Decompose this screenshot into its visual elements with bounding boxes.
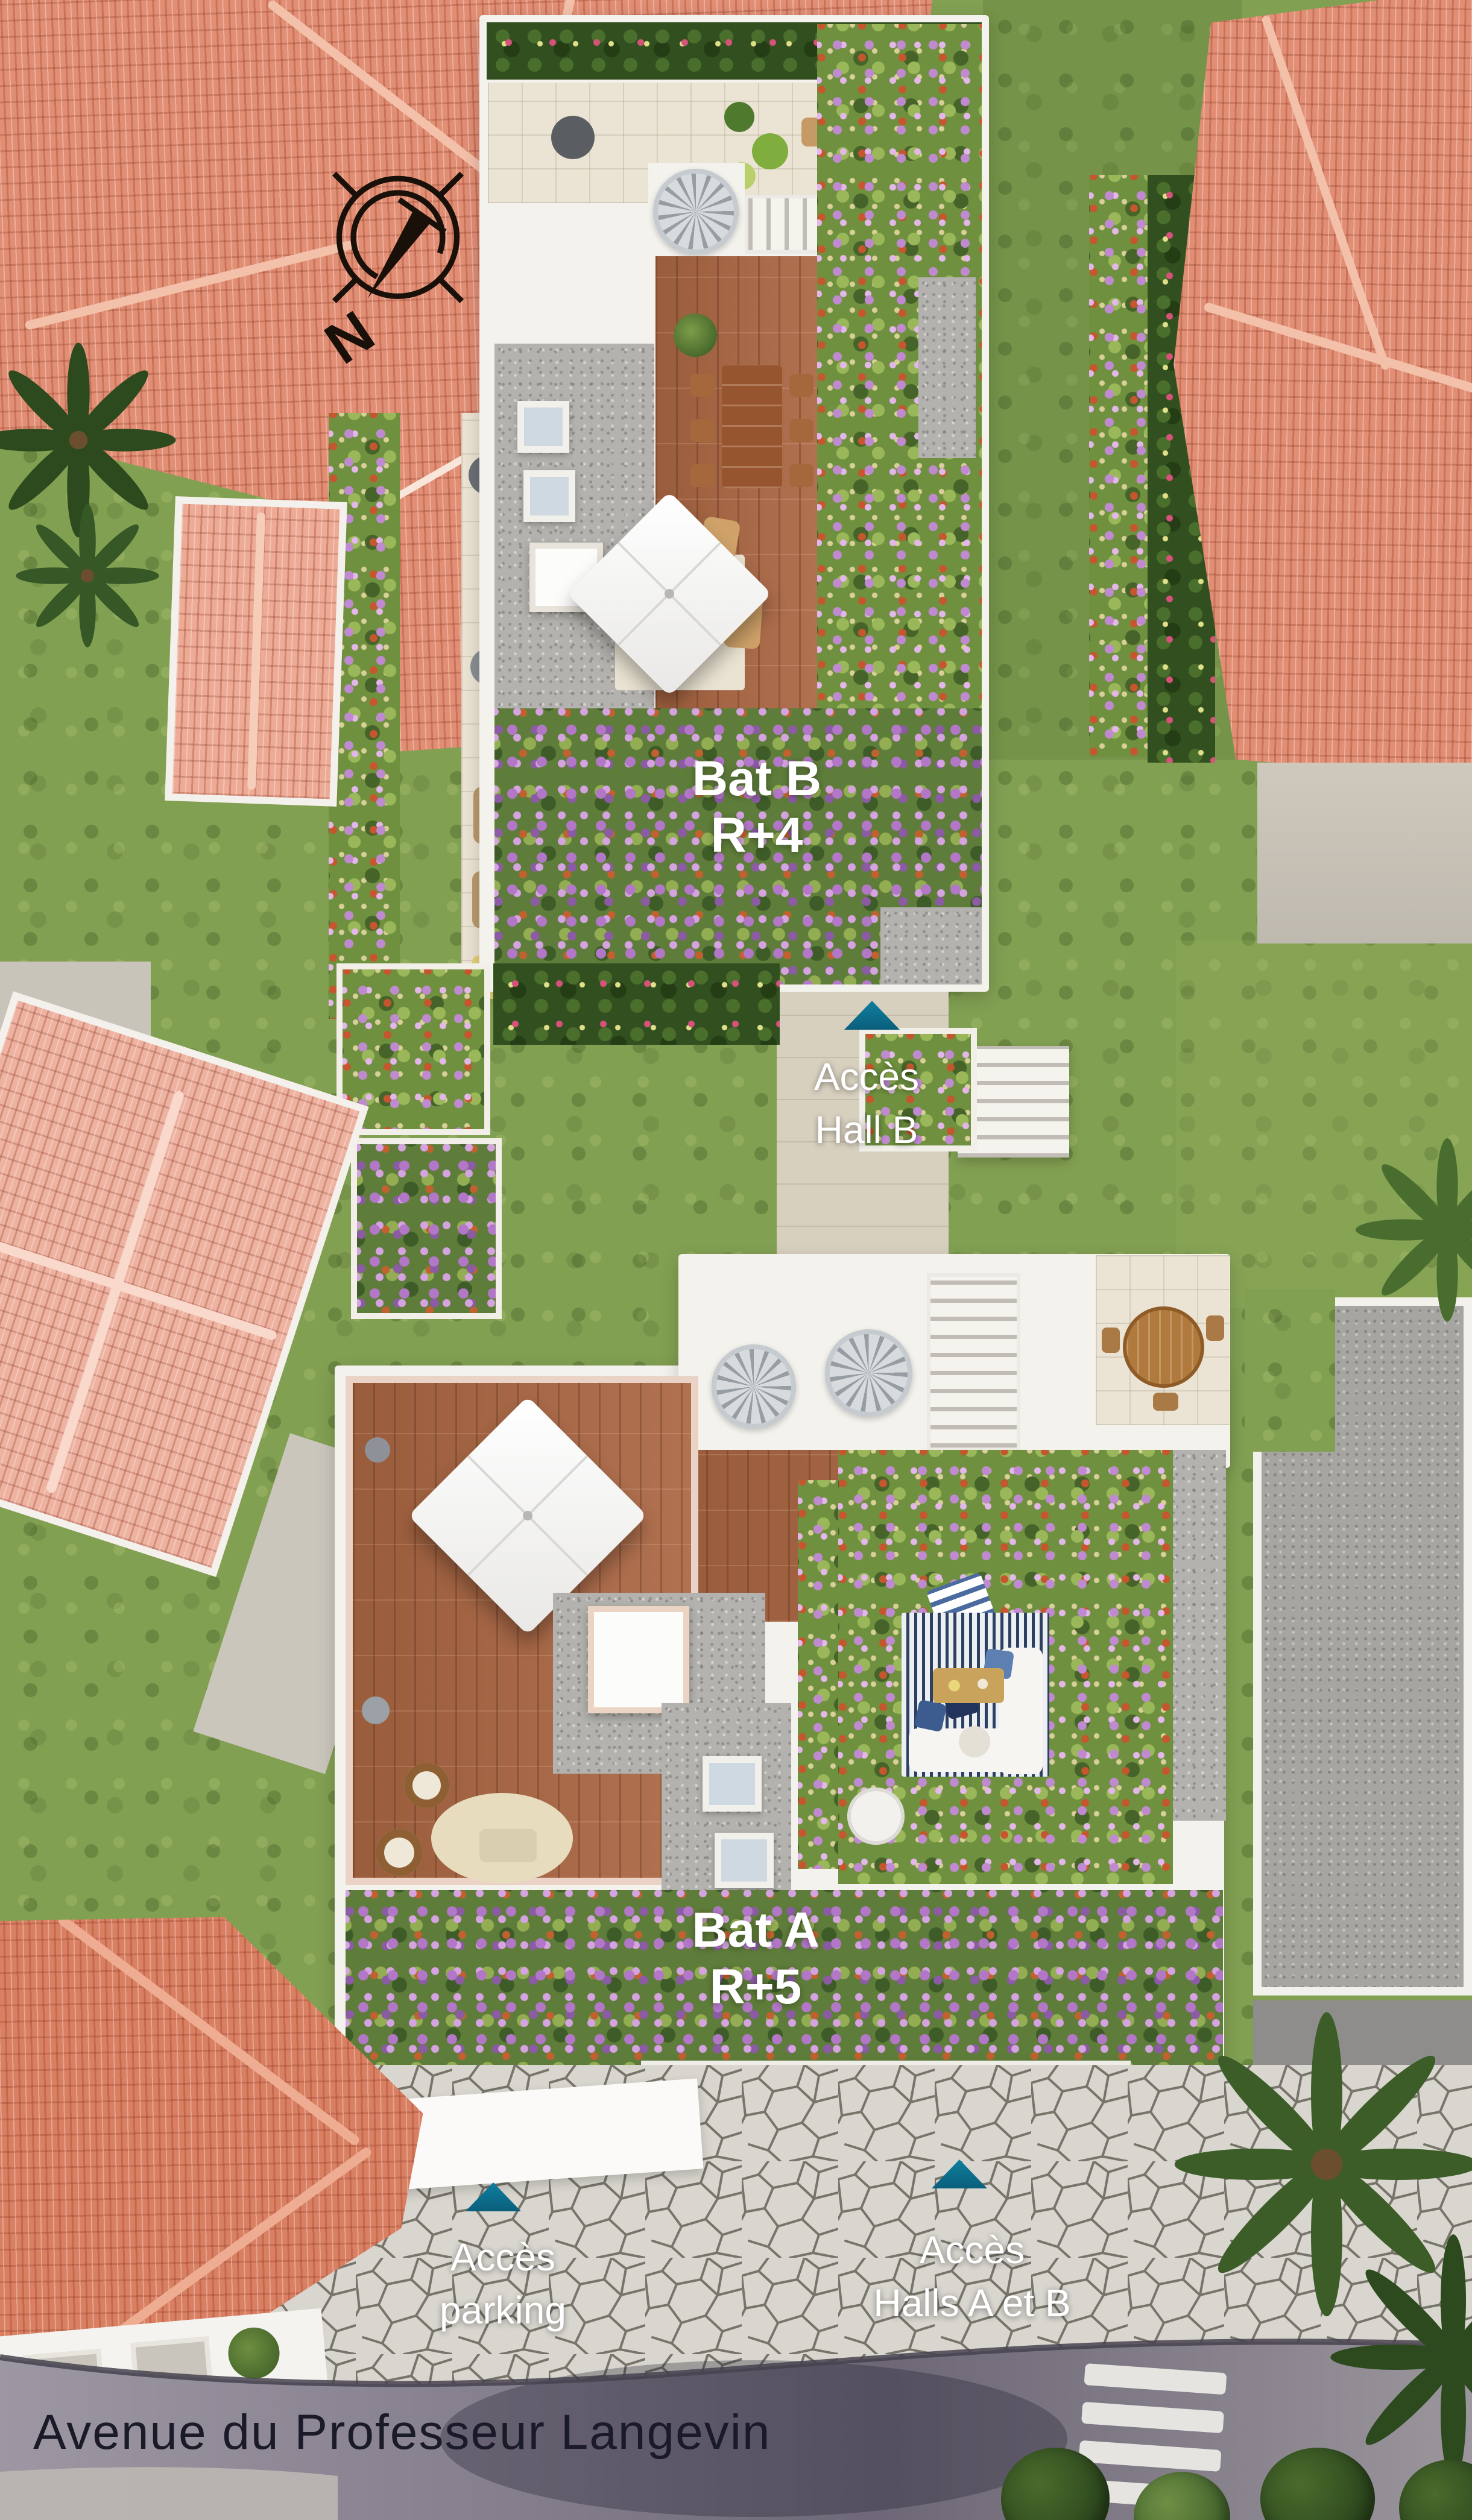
stool <box>1206 1315 1224 1341</box>
gravel-roof-area <box>662 1703 791 1902</box>
planter-pot <box>362 1696 390 1724</box>
gravel-strip <box>1168 1450 1226 1821</box>
striped-rug <box>902 1613 1049 1777</box>
compass-n-letter: N <box>314 298 385 377</box>
wood-round-table <box>1123 1306 1204 1388</box>
spiral-staircase <box>653 169 739 254</box>
rattan-chair <box>404 1763 449 1808</box>
stool <box>1153 1393 1178 1411</box>
green-roof-garden <box>838 1450 1173 1884</box>
pillow <box>914 1699 947 1733</box>
hedge-band <box>493 963 780 1045</box>
building-label-bat-b: Bat B R+4 <box>576 751 938 864</box>
skylight <box>715 1833 774 1888</box>
access-line: Hall B <box>746 1103 987 1156</box>
pergola <box>927 1273 1020 1451</box>
chair <box>690 464 715 487</box>
garden-path <box>918 277 976 458</box>
potted-plant <box>752 133 788 169</box>
building-floors: R+5 <box>557 1959 955 2015</box>
access-line: Accès <box>746 1050 987 1103</box>
palm-tree-icon <box>1327 2231 1472 2484</box>
skylight <box>517 401 569 453</box>
garden-path <box>880 907 982 984</box>
building-name: Bat A <box>557 1902 955 1959</box>
access-label-halls-a-b: Accès Halls A et B <box>803 2223 1141 2329</box>
flower-border-strip <box>1089 175 1149 757</box>
concrete-pad <box>1257 763 1472 943</box>
planter-pot <box>365 1437 390 1463</box>
building-floors: R+4 <box>576 807 938 864</box>
spiral-staircase <box>825 1329 912 1417</box>
closed-parasol <box>847 1788 905 1845</box>
chair <box>789 419 813 442</box>
roof-ridge <box>24 240 354 330</box>
neighbor-roof-west <box>165 496 347 807</box>
coffee-table <box>933 1668 1004 1703</box>
access-label-parking: Accès parking <box>382 2231 624 2337</box>
palm-tree-icon <box>1351 1133 1472 1326</box>
chair <box>789 374 813 397</box>
green-roof-garden <box>817 24 982 808</box>
rooftop-terrace <box>1096 1255 1230 1425</box>
bistro-table <box>551 116 595 159</box>
roof-ridge <box>1203 302 1472 395</box>
roof-ridge <box>1261 14 1391 371</box>
shrub <box>674 313 717 357</box>
site-plan-scene: Bat B R+4 Accès Hall B <box>0 0 1472 2520</box>
roof-hatch <box>588 1606 689 1713</box>
access-label-hall-b: Accès Hall B <box>746 1050 987 1156</box>
stair-landing <box>706 1317 802 1465</box>
roof-ridge <box>45 1090 185 1495</box>
stool <box>1102 1328 1120 1353</box>
pouf <box>959 1726 990 1757</box>
access-line: Accès <box>382 2231 624 2284</box>
lawn-notch <box>1245 1289 1335 1452</box>
parasol-lounge-group <box>579 509 760 690</box>
potted-plant <box>724 102 754 132</box>
access-line: Accès <box>803 2223 1141 2276</box>
skylight <box>523 470 575 522</box>
stair-landing <box>648 163 745 262</box>
rattan-chair <box>376 1829 423 1876</box>
access-line: parking <box>382 2284 624 2337</box>
chair <box>690 419 715 442</box>
spiral-staircase <box>712 1344 796 1429</box>
building-bat-a: Bat A R+5 <box>317 1248 1236 2152</box>
chair <box>690 374 715 397</box>
building-label-bat-a: Bat A R+5 <box>557 1902 955 2015</box>
access-line: Halls A et B <box>803 2276 1141 2329</box>
roof-ridge <box>247 512 265 790</box>
skylight <box>703 1756 762 1812</box>
dining-table <box>722 365 782 488</box>
compass-north-icon: N <box>314 151 482 380</box>
street-name-label: Avenue du Professeur Langevin <box>33 2404 771 2461</box>
stair-landing <box>820 1305 917 1447</box>
building-name: Bat B <box>576 751 938 807</box>
palm-tree-icon <box>12 500 163 651</box>
building-bat-b: Bat B R+4 <box>479 15 989 992</box>
chair <box>789 464 813 487</box>
coffee-table <box>479 1829 537 1862</box>
roof-ridge <box>0 1235 278 1341</box>
